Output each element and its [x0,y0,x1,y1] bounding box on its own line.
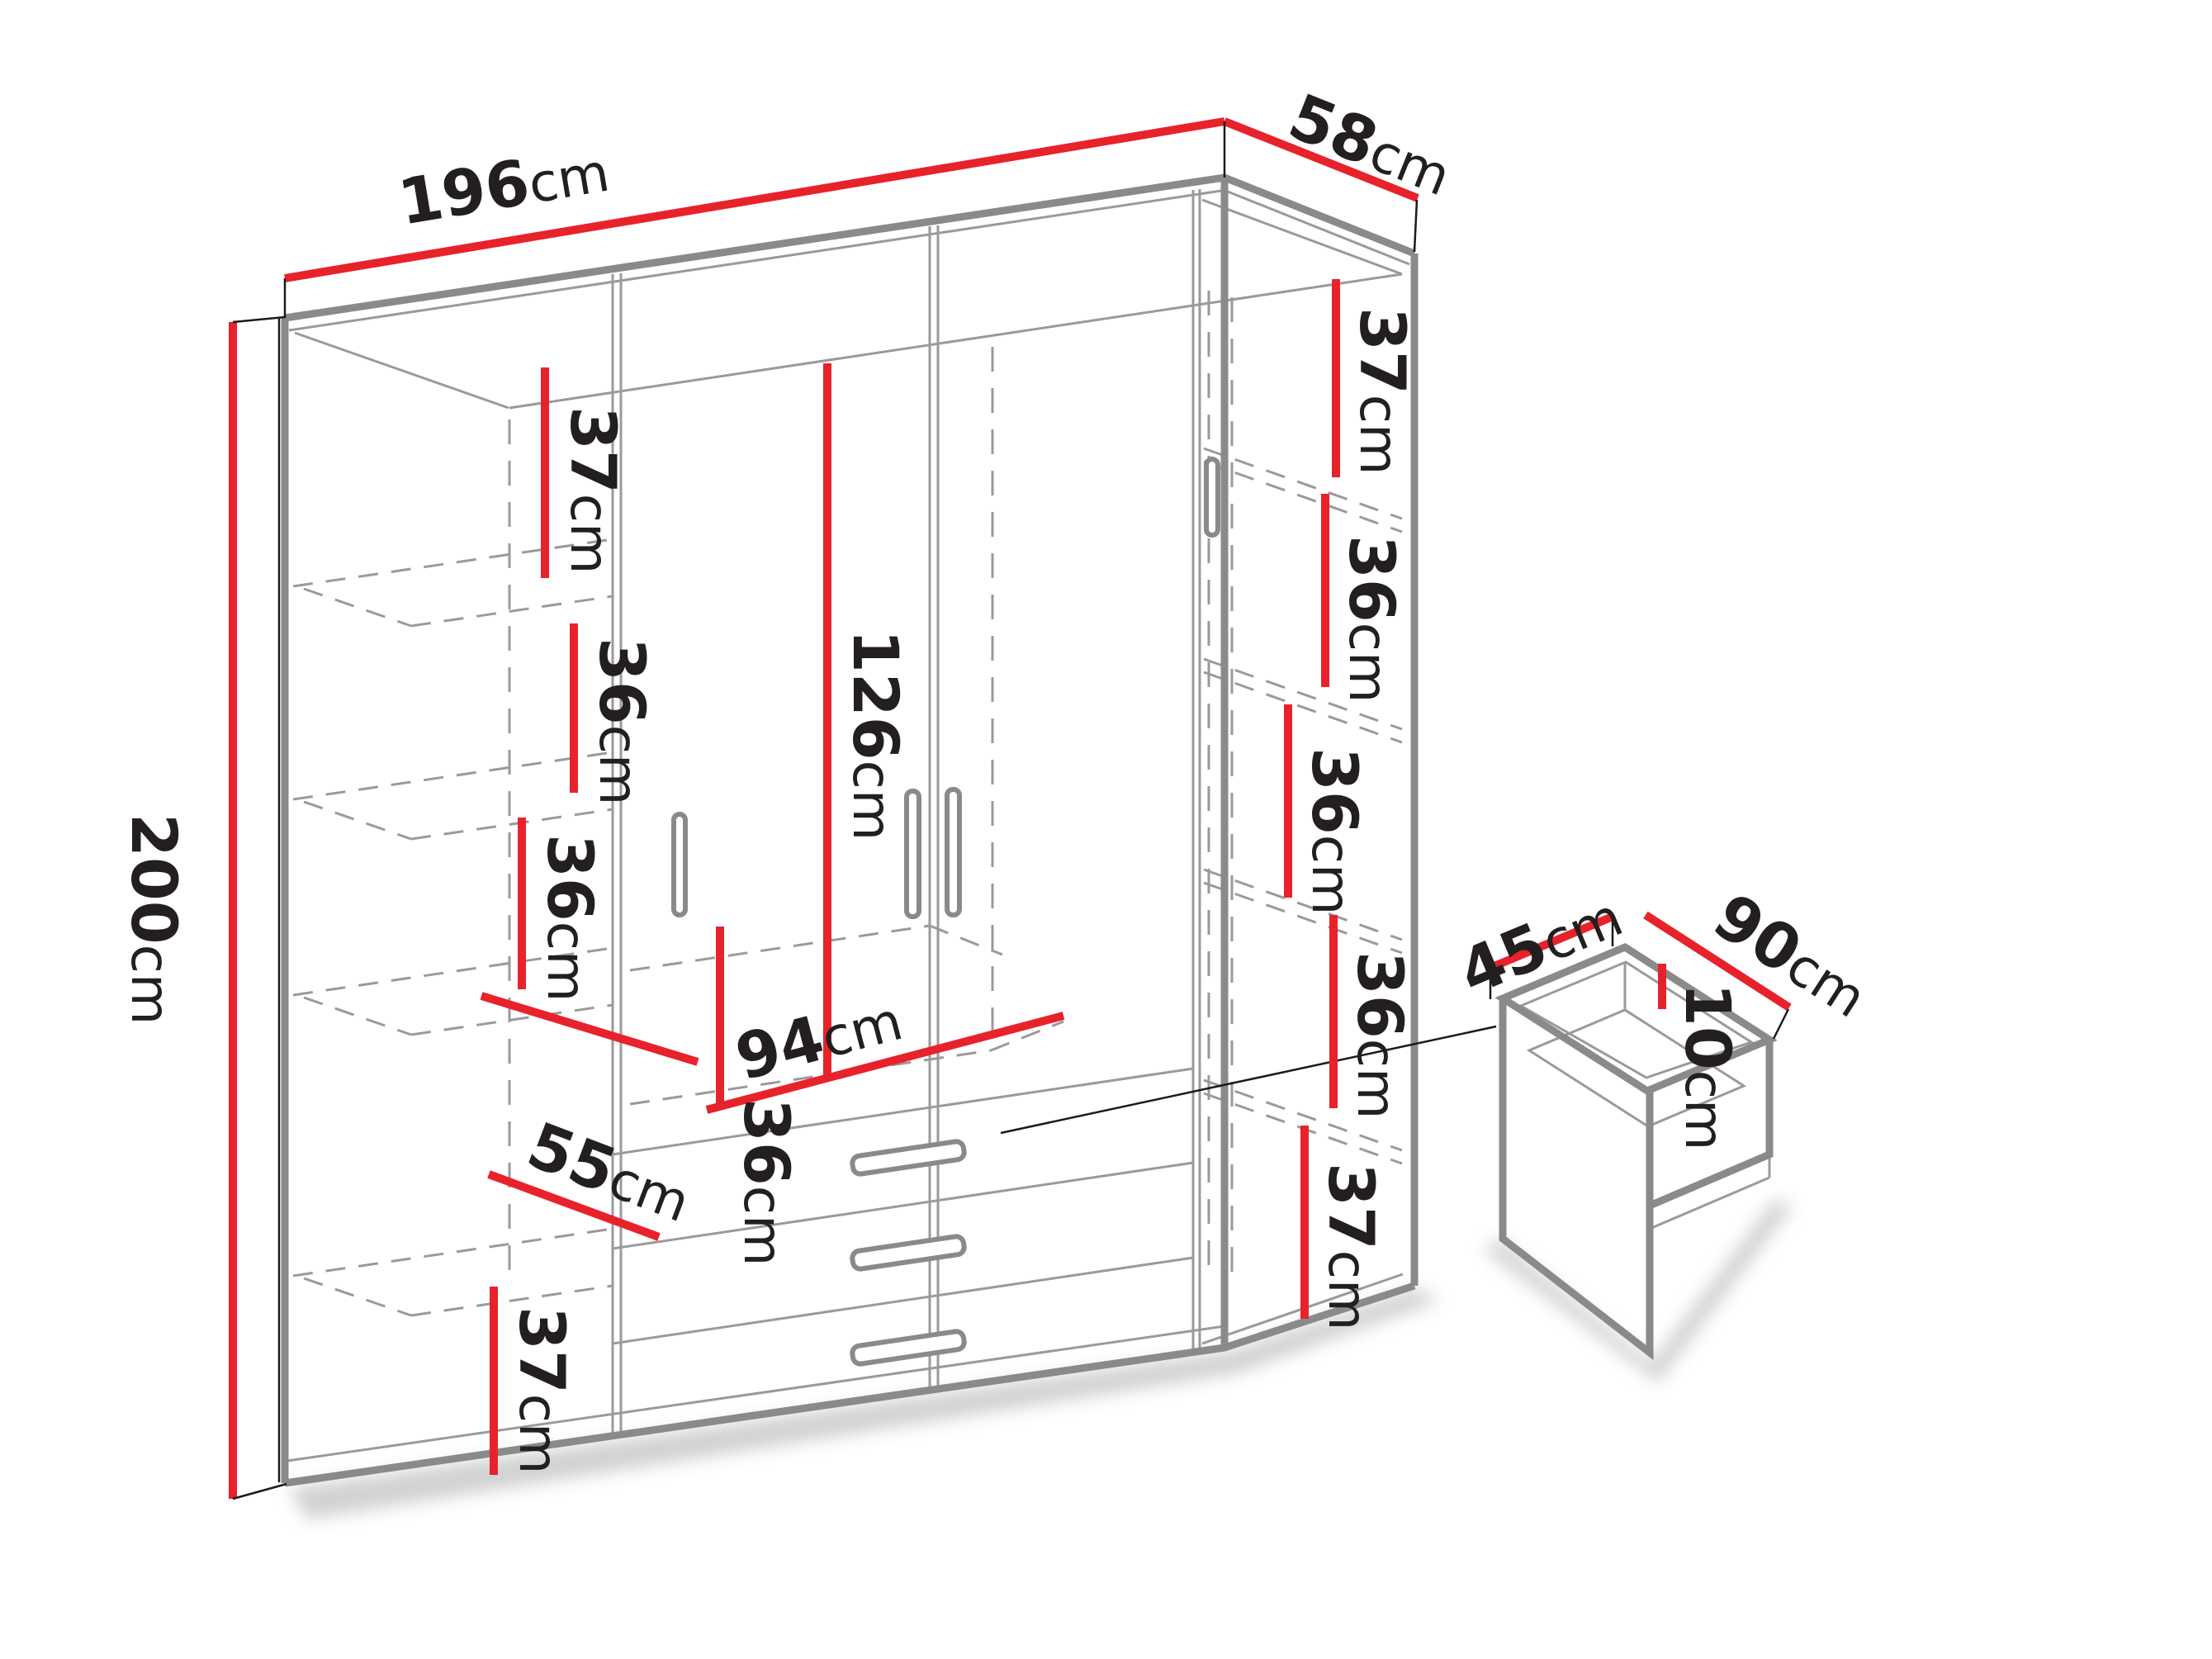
label-left-37-bottom: 37cm [505,1306,579,1474]
furniture-dimension-diagram: 196cm 58cm 200cm 37cm 36cm 36cm 55cm 37c… [0,0,2212,1659]
drawer-separator-2 [613,1258,1193,1344]
shelf-front [293,752,613,799]
label-middle-126: 126cm [839,629,912,841]
shelf-back [411,596,613,626]
ceiling-depth-left [295,333,509,408]
left-column-shelf-2 [293,752,613,839]
label-right-36-b: 36cm [1298,747,1371,915]
door-handle-middle-right [947,789,959,915]
label-drawer-45: 45cm [1449,877,1632,1010]
middle-hidden-shelf [630,926,1002,970]
top-panel-inner-right [1228,192,1409,264]
label-drawer-10: 10cm [1671,983,1745,1150]
drawer-handle-3 [851,1330,965,1365]
shelf-depth [304,1278,411,1315]
door-handle-right [1206,459,1218,535]
door-handle-left [674,814,685,915]
label-width-196: 196cm [393,132,613,239]
drawer-shadow [1485,1199,1792,1382]
shelf-depth [304,802,411,839]
drawer-handle-2 [851,1235,965,1270]
tick-drawer-90-right [1774,1009,1788,1039]
drawer-side-step-b [1650,1178,1769,1229]
tick-depth-right [1414,200,1417,252]
dim-line-left-shelf-edge [481,996,698,1062]
tick-height-top [233,317,285,322]
shelf-depth [304,998,411,1035]
label-left-36-a: 36cm [585,638,659,805]
dimension-labels: 196cm 58cm 200cm 37cm 36cm 36cm 55cm 37c… [117,79,1882,1474]
label-left-37-top: 37cm [557,406,630,574]
drawer-handle-1 [851,1140,965,1175]
label-left-36-b: 36cm [533,834,607,1002]
label-right-36-c: 36cm [1343,951,1417,1119]
drawer-front-panel [1503,998,1650,1353]
label-middle-36: 36cm [730,1098,803,1266]
door-handle-middle-left [907,791,919,917]
ceiling-back-edge [509,274,1402,408]
shelf-depth [304,589,411,626]
shelf-front [293,1229,613,1276]
label-height-200: 200cm [117,813,191,1025]
drawer-separator-1 [613,1163,1193,1249]
bottom-edges [285,1286,1414,1483]
left-column-shelf-4 [293,1229,613,1315]
drawer-leader-line [1001,1026,1496,1133]
label-depth-58: 58cm [1279,79,1462,210]
shelf-front [630,926,930,970]
label-right-37-top: 37cm [1346,307,1419,475]
label-right-36-a: 36cm [1335,535,1409,703]
wardrobe-shadow [289,1288,1438,1519]
tick-height-bottom [233,1484,287,1499]
drawers-top-edge [613,1069,1193,1154]
label-right-37-bottom: 37cm [1314,1163,1388,1330]
diagram-page: 196cm 58cm 200cm 37cm 36cm 36cm 55cm 37c… [0,0,2212,1659]
